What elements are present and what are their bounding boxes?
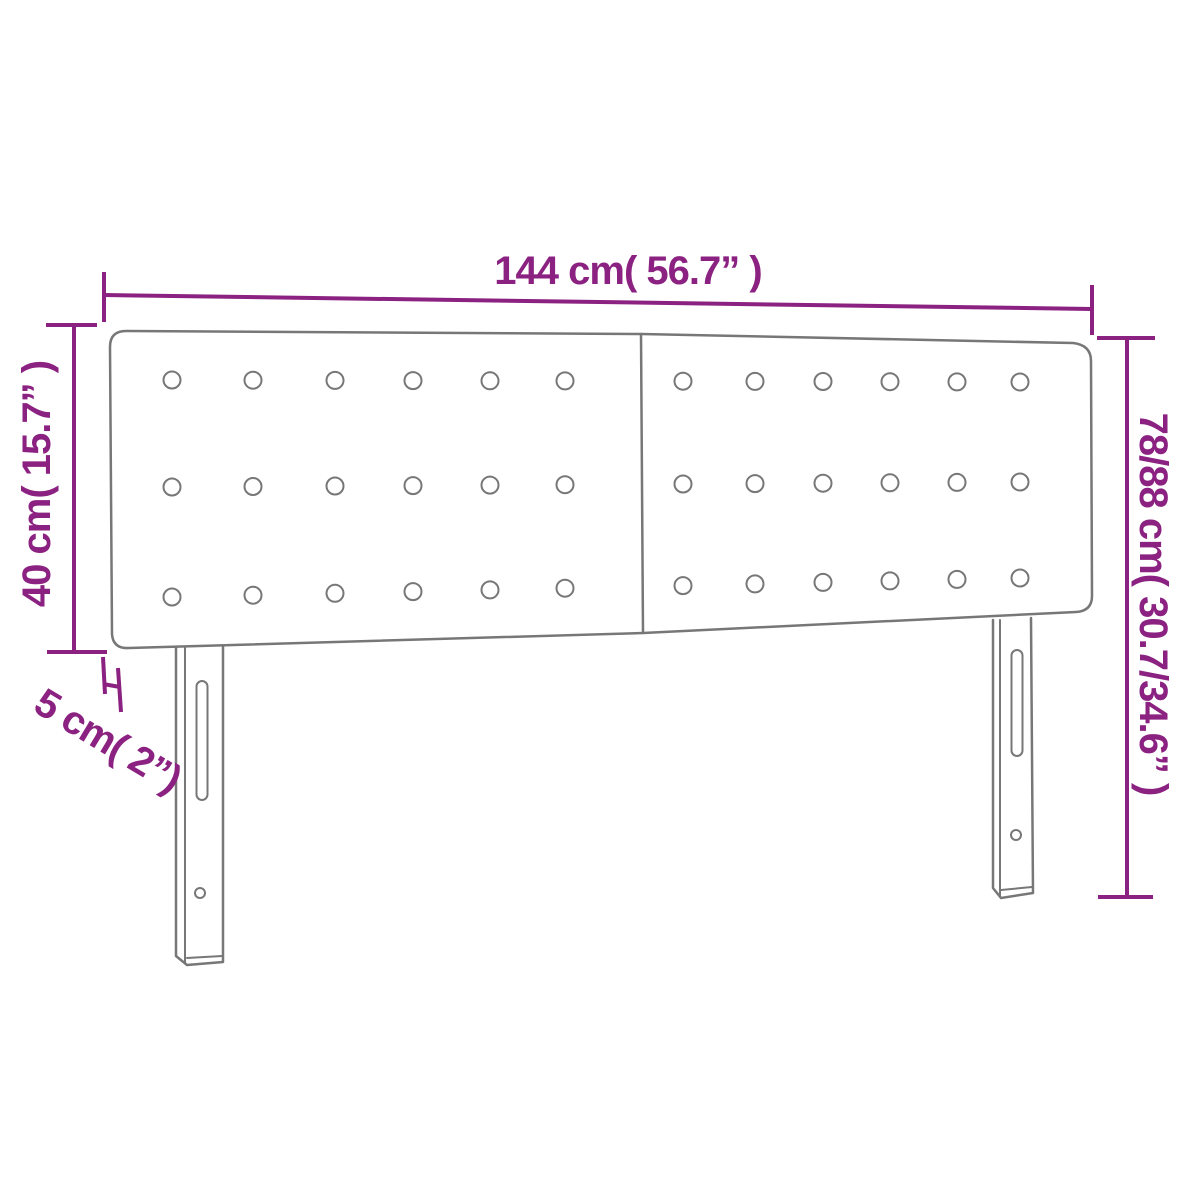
panel-height-dimension-label: 40 cm( 15.7” )	[15, 361, 59, 607]
tufting-button	[1012, 474, 1029, 491]
tufting-button	[882, 572, 899, 589]
tufting-button	[675, 373, 692, 390]
tufting-button	[747, 575, 764, 592]
tufting-button	[1012, 374, 1029, 391]
tufting-button	[405, 477, 422, 494]
headboard-outline	[110, 331, 1092, 648]
tufting-button	[882, 373, 899, 390]
tufting-buttons	[164, 372, 1029, 606]
tufting-button	[949, 373, 966, 390]
panel-height-dimension: 40 cm( 15.7” )	[15, 325, 107, 652]
headboard-drawing	[110, 331, 1092, 965]
panel-seam	[641, 334, 643, 633]
tufting-button	[747, 475, 764, 492]
tufting-button	[482, 477, 499, 494]
tufting-button	[327, 585, 344, 602]
right-leg-screw-hole	[1011, 830, 1021, 840]
tufting-button	[327, 478, 344, 495]
tufting-button	[815, 574, 832, 591]
tufting-button	[1012, 570, 1029, 587]
tufting-button	[327, 372, 344, 389]
thickness-dimension-tick-right	[118, 668, 121, 712]
total-height-dimension: 78/88 cm( 30.7/34.6” )	[1097, 338, 1175, 897]
width-dimension-line	[104, 295, 1092, 309]
tufting-button	[482, 372, 499, 389]
thickness-dimension: 5 cm( 2”)	[27, 657, 189, 801]
tufting-button	[482, 581, 499, 598]
tufting-button	[675, 476, 692, 493]
diagram-canvas: 144 cm( 56.7” ) 40 cm( 15.7” ) 5 cm( 2”)…	[0, 0, 1200, 1200]
left-leg-screw-hole	[195, 888, 205, 898]
total-height-dimension-label: 78/88 cm( 30.7/34.6” )	[1131, 413, 1175, 796]
left-leg-slot	[197, 681, 208, 800]
tufting-button	[245, 587, 262, 604]
tufting-button	[405, 583, 422, 600]
right-leg-slot	[1012, 650, 1023, 756]
thickness-dimension-tick-left	[103, 657, 105, 694]
left-leg	[176, 646, 223, 965]
width-dimension: 144 cm( 56.7” )	[104, 249, 1092, 335]
thickness-dimension-label: 5 cm( 2”)	[27, 680, 189, 801]
tufting-button	[815, 475, 832, 492]
tufting-button	[164, 372, 181, 389]
tufting-button	[747, 373, 764, 390]
tufting-button	[949, 474, 966, 491]
left-leg-body	[176, 646, 223, 965]
tufting-button	[675, 577, 692, 594]
tufting-button	[405, 372, 422, 389]
tufting-button	[245, 478, 262, 495]
width-dimension-label: 144 cm( 56.7” )	[494, 249, 761, 293]
left-leg-foot-line	[187, 956, 222, 958]
tufting-button	[815, 373, 832, 390]
tufting-button	[164, 589, 181, 606]
tufting-button	[557, 372, 574, 389]
tufting-button	[557, 580, 574, 597]
right-leg	[993, 618, 1033, 898]
tufting-button	[882, 474, 899, 491]
tufting-button	[949, 571, 966, 588]
right-leg-foot-line	[1001, 887, 1032, 890]
tufting-button	[164, 479, 181, 496]
tufting-button	[245, 372, 262, 389]
tufting-button	[557, 476, 574, 493]
